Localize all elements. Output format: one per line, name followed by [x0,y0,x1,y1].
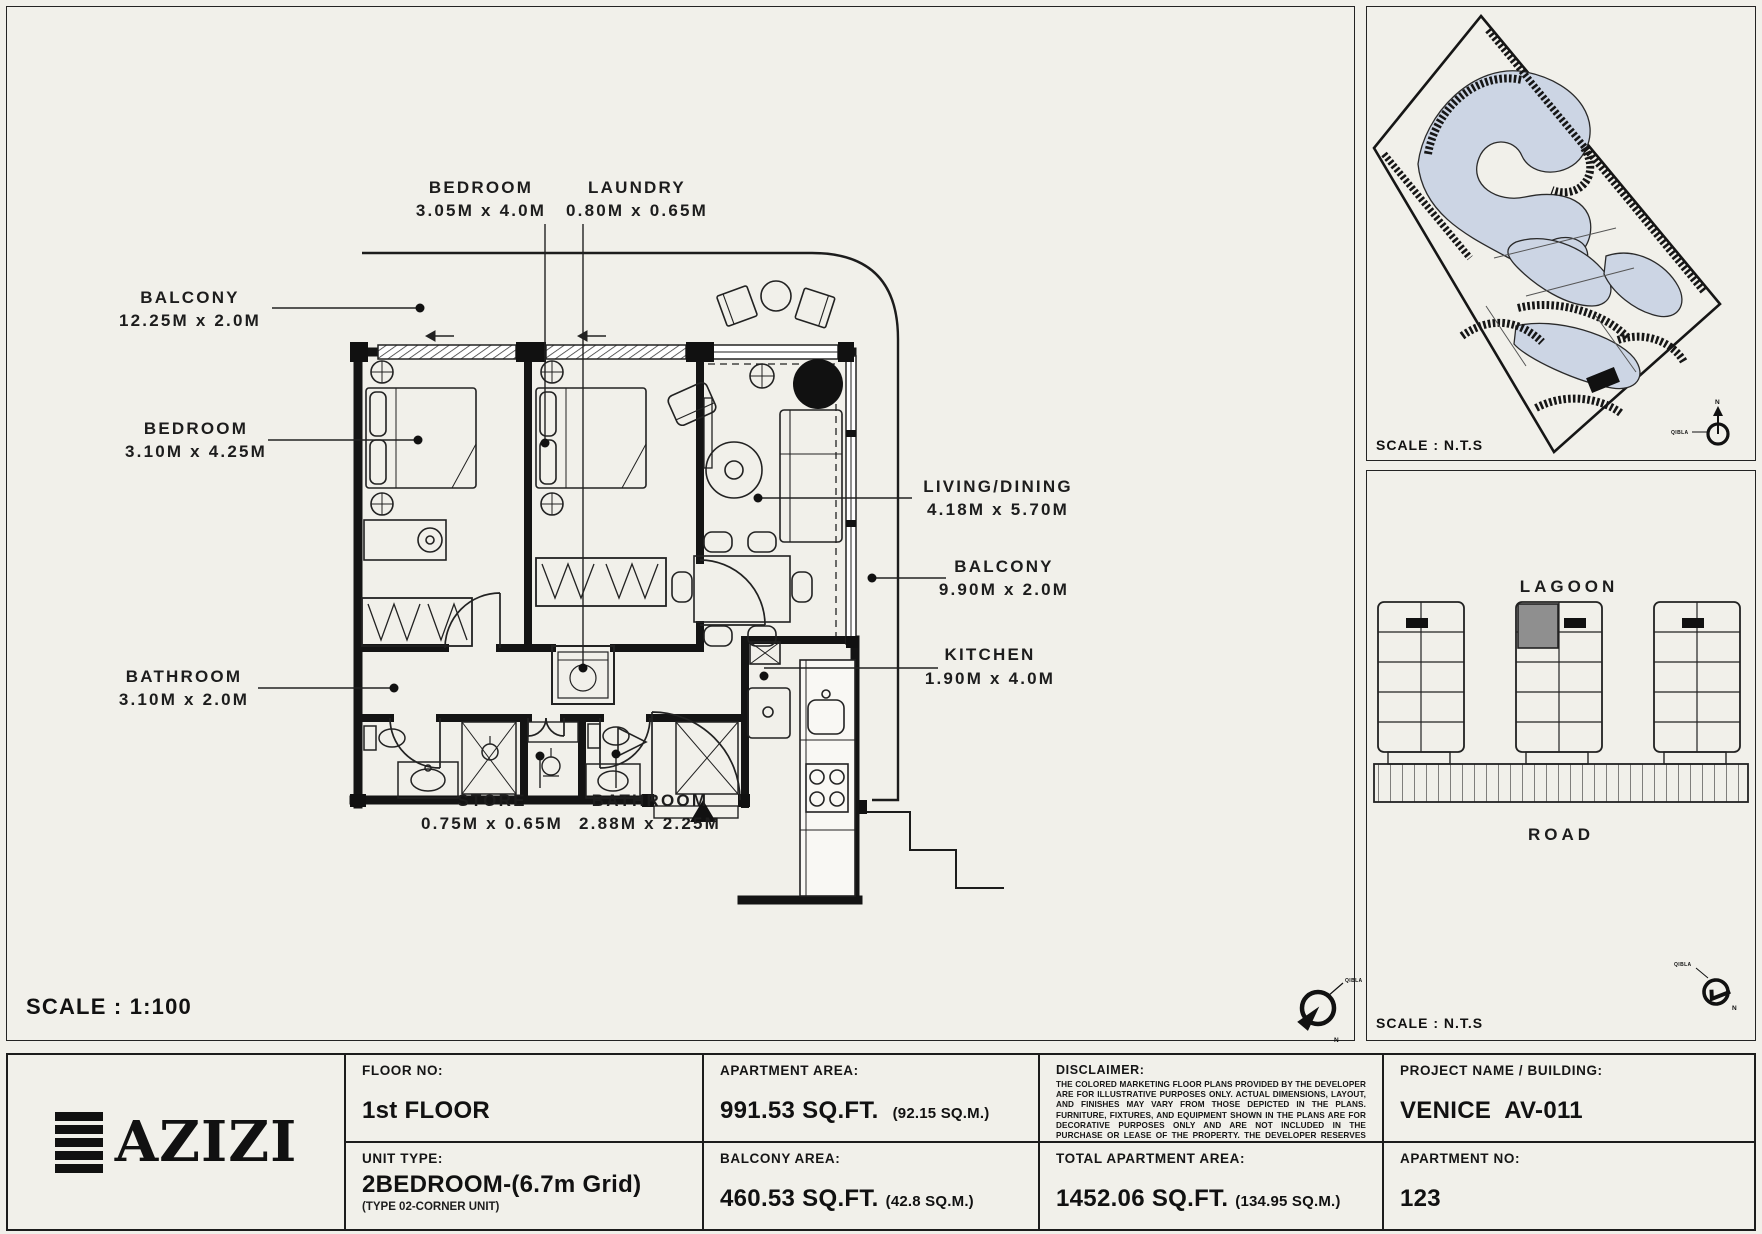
site-scale-label: SCALE : N.T.S [1376,437,1483,453]
site-compass-qibla: QIBLA [1671,430,1689,436]
unit-type-cell: UNIT TYPE: 2BEDROOM-(6.7m Grid) (TYPE 02… [346,1143,702,1229]
living-dining-furniture [666,359,843,646]
label-laundry: LAUNDRY [588,178,686,197]
project-name-label: PROJECT NAME / BUILDING: [1400,1063,1738,1078]
store-fixtures [528,722,578,776]
label-store: STORE [457,791,526,810]
label-bedroom-left: BEDROOM [144,419,248,438]
road-label: ROAD [1528,825,1594,844]
main-scale-label: SCALE : 1:100 [26,994,192,1019]
site-compass-north: N [1715,399,1720,406]
unit-type-value: 2BEDROOM-(6.7m Grid) [362,1171,686,1199]
site-map-drawing: SCALE : N.T.S N QIBLA [1366,6,1756,461]
apartment-area-label: APARTMENT AREA: [720,1063,1022,1078]
project-name-value: VENICE AV-011 [1400,1097,1738,1125]
developer-logo: AZIZI [8,1055,344,1229]
label-bedroom-left-dims: 3.10M x 4.25M [125,442,267,461]
label-bedroom-top: BEDROOM [429,178,533,197]
balcony-area-imperial: 460.53 SQ.FT. [720,1185,879,1212]
lagoon-label: LAGOON [1520,577,1619,596]
label-bathroom-bottom-dims: 2.88M x 2.25M [579,814,721,833]
key-highlighted-unit [1518,604,1558,648]
bedroom-1-furniture [362,361,476,646]
label-store-dims: 0.75M x 0.65M [421,814,563,833]
title-block-table: AZIZI FLOOR NO: 1st FLOOR APARTMENT AREA… [6,1053,1756,1231]
unit-type-label: UNIT TYPE: [362,1151,686,1166]
label-bedroom-top-dims: 3.05M x 4.0M [416,201,546,220]
label-balcony-right-dims: 9.90M x 2.0M [939,580,1069,599]
balcony-area-label: BALCONY AREA: [720,1151,1022,1166]
disclaimer-text: THE COLORED MARKETING FLOOR PLANS PROVID… [1056,1080,1366,1141]
key-compass-qibla: QIBLA [1674,962,1692,968]
disclaimer-label: DISCLAIMER: [1056,1063,1366,1077]
balcony-furniture [716,281,835,328]
windows [378,345,856,644]
key-buildings [1374,602,1748,802]
brand-name: AZIZI [115,1114,298,1170]
balcony-area-metric: (42.8 SQ.M.) [886,1193,974,1210]
apartment-no-cell: APARTMENT NO: 123 [1384,1143,1754,1229]
balcony-area-value: 460.53 SQ.FT. (42.8 SQ.M.) [720,1185,1022,1213]
apartment-area-cell: APARTMENT AREA: 991.53 SQ.FT. (92.15 SQ.… [704,1055,1038,1141]
label-balcony-left-dims: 12.25M x 2.0M [119,311,261,330]
compass-north-label: N [1334,1037,1339,1044]
key-compass-north: N [1732,1005,1737,1012]
apartment-area-metric: (92.15 SQ.M.) [893,1105,990,1122]
floor-no-cell: FLOOR NO: 1st FLOOR [346,1055,702,1141]
label-balcony-left: BALCONY [140,288,239,307]
unit-type-note: (TYPE 02-CORNER UNIT) [362,1201,686,1213]
room-labels: BEDROOM 3.05M x 4.0M LAUNDRY 0.80M x 0.6… [119,178,1073,833]
label-laundry-dims: 0.80M x 0.65M [566,201,708,220]
label-living-dims: 4.18M x 5.70M [927,500,1069,519]
label-bathroom-left: BATHROOM [126,667,242,686]
total-area-cell: TOTAL APARTMENT AREA: 1452.06 SQ.FT. (13… [1040,1143,1382,1229]
compass-qibla-label: QIBLA [1345,978,1363,984]
site-compass-icon: N QIBLA [1671,399,1728,444]
key-scale-label: SCALE : N.T.S [1376,1015,1483,1031]
label-kitchen-dims: 1.90M x 4.0M [925,669,1055,688]
apartment-area-imperial: 991.53 SQ.FT. [720,1097,879,1124]
slide-arrows [426,331,606,341]
floor-no-value: 1st FLOOR [362,1097,686,1125]
floorplan-sheet: BEDROOM 3.05M x 4.0M LAUNDRY 0.80M x 0.6… [0,0,1762,1234]
label-balcony-right: BALCONY [954,557,1053,576]
bedroom-2-furniture [536,361,712,606]
total-area-imperial: 1452.06 SQ.FT. [1056,1185,1228,1212]
site-lagoon [1418,71,1682,389]
floor-no-label: FLOOR NO: [362,1063,686,1078]
apartment-area-value: 991.53 SQ.FT. (92.15 SQ.M.) [720,1097,1022,1125]
label-living: LIVING/DINING [923,477,1073,496]
label-bathroom-left-dims: 3.10M x 2.0M [119,690,249,709]
project-name-cell: PROJECT NAME / BUILDING: VENICE AV-011 [1384,1055,1754,1141]
total-area-label: TOTAL APARTMENT AREA: [1056,1151,1366,1166]
label-bathroom-bottom: BATHROOM [592,791,708,810]
bathroom-2-fixtures [586,722,738,798]
apartment-no-value: 123 [1400,1185,1738,1213]
apartment-no-label: APARTMENT NO: [1400,1151,1738,1166]
label-kitchen: KITCHEN [945,645,1036,664]
key-compass-icon: N QIBLA [1674,962,1737,1012]
balcony-area-cell: BALCONY AREA: 460.53 SQ.FT. (42.8 SQ.M.) [704,1143,1038,1229]
total-area-value: 1452.06 SQ.FT. (134.95 SQ.M.) [1056,1185,1366,1213]
key-plan-drawing: LAGOON ROAD SCALE : N.T.S [1366,470,1756,1041]
total-area-metric: (134.95 SQ.M.) [1235,1193,1340,1210]
logo-bars-icon [55,1112,103,1173]
compass-icon: N QIBLA [1297,978,1362,1044]
disclaimer-cell: DISCLAIMER: THE COLORED MARKETING FLOOR … [1040,1055,1382,1141]
